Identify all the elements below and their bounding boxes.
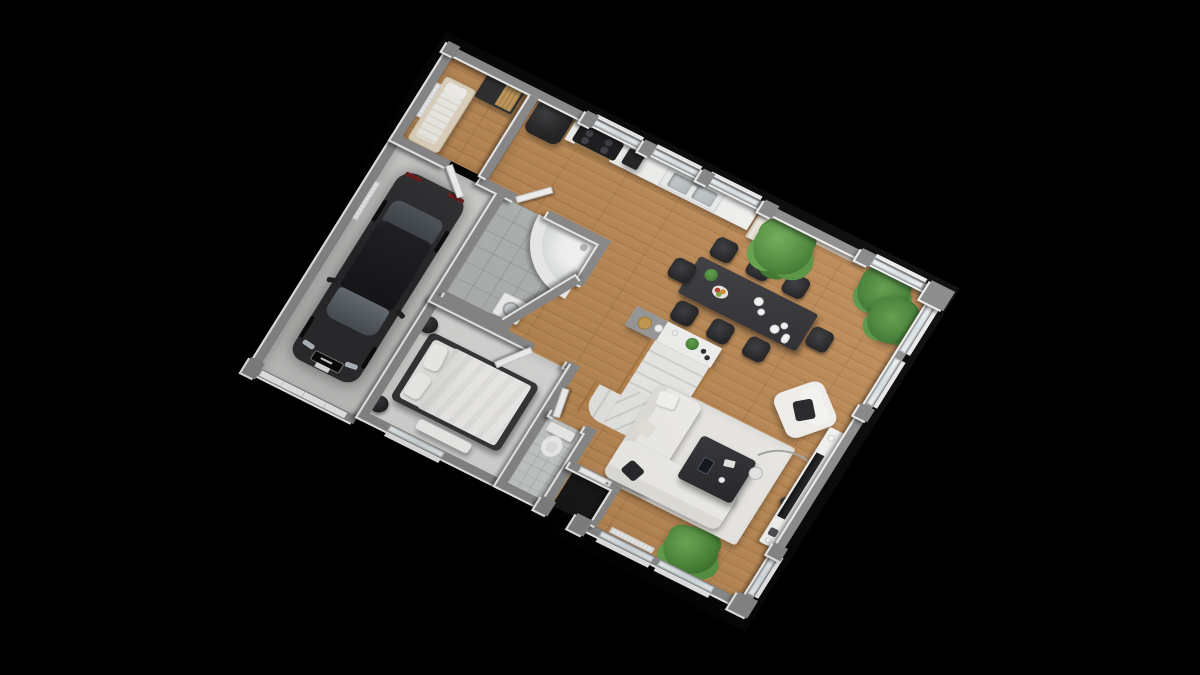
car-headlight xyxy=(302,339,316,350)
door-handle xyxy=(605,481,610,485)
phone xyxy=(696,456,715,475)
floorplan-stage xyxy=(0,0,1200,675)
car-headlight xyxy=(344,361,358,370)
decor-bottle xyxy=(703,354,711,361)
decor-bottle xyxy=(700,348,708,355)
cup xyxy=(717,476,726,484)
decor-plant xyxy=(683,336,701,352)
paper xyxy=(723,459,736,468)
armchair-pillow xyxy=(792,398,816,421)
decor-cup xyxy=(670,329,679,337)
floorplan-render xyxy=(247,45,945,618)
